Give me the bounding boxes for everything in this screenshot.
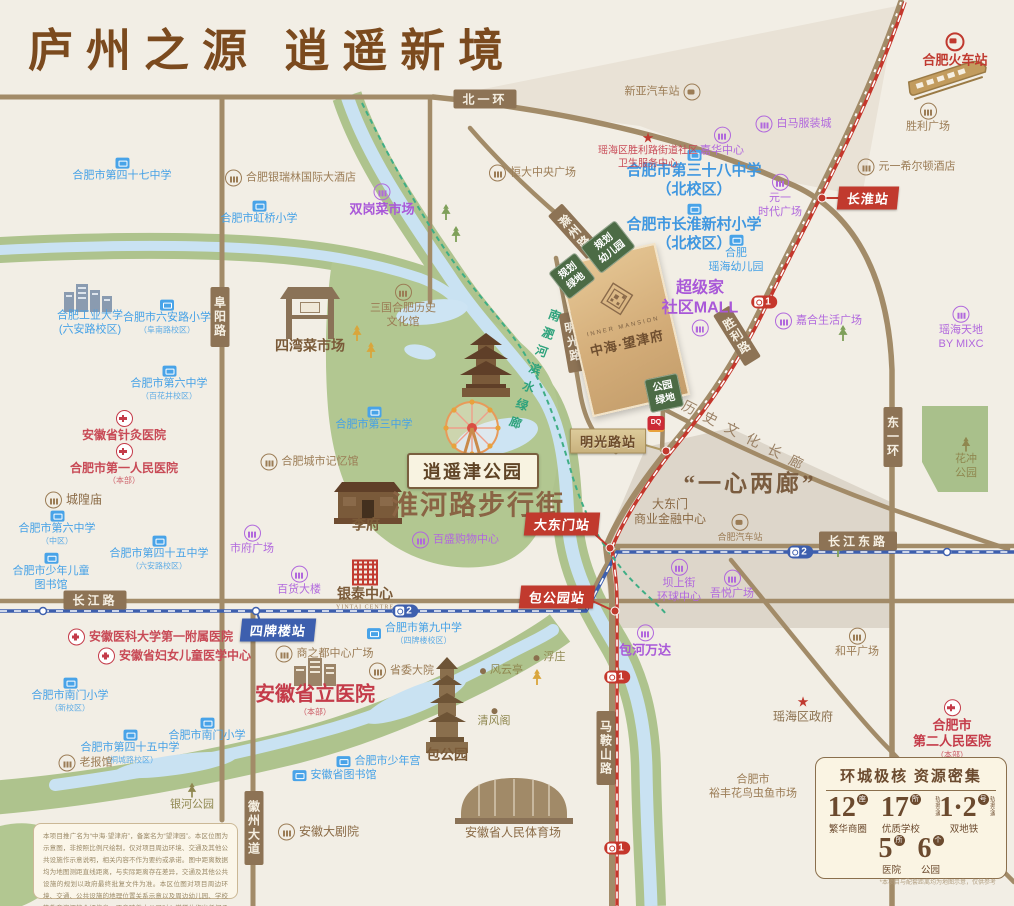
dot-icon: [534, 655, 540, 661]
poi-label-line: 三国合肥历史: [370, 302, 436, 316]
poi: 合肥瑶海幼儿园: [709, 234, 764, 275]
poi-label-line: 合肥: [709, 247, 764, 261]
school-icon: [50, 511, 64, 522]
poi-label: 合肥市裕丰花鸟虫鱼市场: [709, 773, 797, 801]
poi: 合肥火车站: [922, 31, 987, 68]
poi-label: 商之都中心广场: [297, 647, 374, 661]
poi-label-line: 合肥市: [913, 717, 991, 733]
poi: 花冲公园: [955, 436, 977, 481]
poi-label-line: 安徽医科大学第一附属医院: [89, 630, 233, 645]
poi-label: 嘉合生活广场: [796, 314, 862, 328]
mall-icon: [412, 532, 429, 549]
poi: 合肥市第三中学: [336, 406, 413, 433]
station-badge: 长淮站: [837, 187, 899, 210]
poi-label-line: 风云亭: [490, 664, 523, 678]
poi-label-line: 嘉华中心: [700, 145, 744, 159]
poi: 合肥工业大学(六安路校区): [57, 309, 123, 337]
disclaimer-panel: 本项目推广名为“中海·望津府”，备案名为“望津园”。本区位图为示意图，非按照比例…: [33, 823, 238, 899]
tree-icon: [960, 437, 972, 452]
legend-stat: 5所医院: [879, 835, 905, 876]
school-icon: [123, 730, 137, 741]
poi-label-line: 合肥市第四十七中学: [73, 170, 172, 184]
poi: 合肥市第九中学（四牌楼校区）: [366, 622, 462, 646]
poi-label: 合肥市第三中学: [336, 419, 413, 433]
poi: 双岗菜市场: [349, 182, 414, 217]
poi-label: 浮庄: [544, 651, 566, 665]
poi-label-line: 合肥城市记忆馆: [282, 455, 359, 469]
poi: 元一希尔顿酒店: [857, 158, 956, 177]
poi: 合肥市第二人民医院（本部）: [913, 698, 991, 760]
poi-label-line: 百盛购物中心: [433, 533, 499, 547]
poi-label: 安徽省图书馆: [311, 769, 377, 783]
poi: 风云亭: [479, 664, 523, 678]
legend-stat-number: 1·2: [939, 794, 976, 822]
metro-line-number: 1: [765, 297, 771, 308]
poi: 四湾菜市场: [275, 338, 345, 356]
poi-sublabel: （四牌楼校区）: [385, 636, 462, 646]
school-icon: [152, 536, 166, 547]
legend-stat-unit: 所: [910, 794, 921, 805]
poi-label-line: 合肥工业大学: [57, 309, 123, 323]
metro-logo-icon: [607, 673, 616, 682]
poi-label: 合肥市少年儿童图书馆: [13, 565, 90, 593]
poi-label: 和平广场: [835, 646, 879, 660]
poi-label: 超级家社区MALL: [662, 279, 738, 319]
poi: 合肥银瑞林国际大酒店: [224, 169, 356, 188]
poi-label: 合肥市六安路小学（阜南路校区）: [123, 312, 211, 336]
poi-label: 合肥汽车站: [717, 532, 762, 543]
poi-label: 安徽省妇女儿童医学中心: [119, 649, 251, 664]
poi: 包河万达: [619, 623, 671, 658]
poi-label-line: 合肥市第一人民医院: [70, 461, 178, 476]
mall-icon: [775, 313, 792, 330]
road-tag: 徽州大道: [245, 791, 264, 865]
poi-label-line: 合肥汽车站: [717, 532, 762, 543]
poi: 城隍庙: [44, 491, 102, 510]
legend-note: *本项目与配套距离均为地图示意，仅供参考: [826, 877, 996, 886]
poi-label: 嘉华中心: [700, 145, 744, 159]
mall-icon: [291, 566, 308, 583]
poi-label-line: 裕丰花鸟虫鱼市场: [709, 787, 797, 801]
school-icon: [252, 201, 266, 212]
poi-sublabel: （中区）: [19, 536, 96, 546]
legend-stat: 轨道交通1·2号轨道交通双地铁: [934, 794, 994, 835]
dot-icon: [480, 668, 486, 674]
poi-label-line: 银河公园: [170, 799, 214, 813]
poi: 和平广场: [835, 627, 879, 660]
poi-label: 银泰中心YINTAI CENTRE: [336, 587, 394, 612]
legend-stat-label: 繁华商圈: [828, 821, 868, 835]
poi-label: 合肥城市记忆馆: [282, 455, 359, 469]
poi-label-line: 时代广场: [758, 206, 802, 220]
planning-green-box: 公园绿地: [644, 373, 684, 413]
poi: 吾悦广场: [710, 569, 754, 602]
legend-stat-row: 17所: [881, 794, 921, 822]
poi-label-line: 公园: [955, 467, 977, 481]
poi: 银泰中心YINTAI CENTRE: [336, 559, 394, 612]
station-badge: 四牌楼站: [240, 619, 316, 642]
poi: 合肥市南门小学（新校区）: [32, 677, 109, 714]
poi: 合肥市第四十七中学: [73, 157, 172, 184]
poi-label-line: 包公园: [426, 747, 468, 765]
legend-stat-row: 6个: [918, 835, 944, 863]
brnc-icon: [849, 628, 866, 645]
poi: 市府广场: [230, 524, 274, 557]
mall-icon: [756, 116, 773, 133]
poi-label-line: 恒大中央广场: [510, 166, 576, 180]
xiaoyaojin-pagoda-illustration: [458, 333, 514, 397]
road-tag: 长江路: [63, 591, 126, 610]
legend-stat-label: 公园: [918, 862, 944, 876]
legend-stat: 6个公园: [918, 835, 944, 876]
poi-label-line: 合肥银瑞林国际大酒店: [246, 171, 356, 185]
poi-label: 新亚汽车站: [625, 85, 680, 99]
poi-label: 大东门商业金融中心: [634, 497, 706, 527]
poi: 合肥城市记忆馆: [260, 453, 359, 472]
legend-stat-unit: 所: [894, 835, 905, 846]
poi-label: 合肥市第二人民医院（本部）: [913, 717, 991, 760]
yintai-icon: [352, 560, 378, 586]
disclaimer-text: 本项目推广名为“中海·望津府”，备案名为“望津园”。本区位图为示意图，非按照比例…: [43, 831, 228, 906]
poi-label: 元一希尔顿酒店: [879, 160, 956, 174]
road-tag: 马鞍山路: [597, 711, 616, 785]
poi-label: 省委大院: [390, 664, 434, 678]
metro-line-1-badge: 1: [604, 842, 630, 855]
star-icon: ★: [797, 695, 810, 709]
poi: ★瑶海区胜利路街道社区卫生服务中心: [598, 130, 698, 171]
poi-label-line: 城隍庙: [66, 493, 102, 508]
school-icon: [367, 629, 381, 640]
road-tag: 东一环: [884, 407, 903, 467]
legend-panel: 环城极核 资源密集 12座繁华商圈17所优质学校轨道交通1·2号轨道交通双地铁5…: [815, 757, 1007, 879]
poi-label-line: 坝上街: [657, 577, 701, 591]
poi-label-line: 商之都中心广场: [297, 647, 374, 661]
university-building-illustration: [62, 280, 114, 312]
poi: 合肥市第六中学（中区）: [19, 510, 96, 547]
brnc-icon: [369, 663, 386, 680]
poi-label-line: 合肥市长淮新村小学: [626, 216, 761, 235]
poi: 安徽大剧院: [277, 823, 359, 842]
poi-sublabel: （新校区）: [32, 703, 109, 713]
legend-stat-number: 5: [879, 835, 893, 863]
poi-label-line: 浮庄: [544, 651, 566, 665]
poi-label: 合肥市少年宫: [355, 755, 421, 769]
legend-stat-number: 12: [828, 794, 856, 822]
poi: 商之都中心广场: [275, 645, 374, 664]
legend-stat-number: 17: [881, 794, 909, 822]
school-icon: [367, 407, 381, 418]
cross-icon: [115, 410, 132, 427]
bus-icon: [731, 514, 748, 531]
poi: 合肥市六安路小学（阜南路校区）: [123, 299, 211, 336]
poi-label-line: 第二人民医院: [913, 734, 991, 750]
cross-icon: [943, 699, 960, 716]
poi-label-line: 市府广场: [230, 543, 274, 557]
poi-label: 恒大中央广场: [510, 166, 576, 180]
poi-label-line: 安徽省图书馆: [311, 769, 377, 783]
metro-line-2-badge: 2: [787, 546, 813, 559]
mall-icon: [244, 525, 261, 542]
metro-logo-icon: [607, 844, 616, 853]
poi-sublabel: （本部）: [255, 708, 375, 718]
planning-green-box-label: 绿地: [654, 391, 676, 408]
poi-label: 吾悦广场: [710, 588, 754, 602]
legend-stat-unit: 座: [857, 794, 868, 805]
poi-label: 合肥市第一人民医院（本部）: [70, 461, 178, 486]
metro-line-1-badge: 1: [604, 671, 630, 684]
poi-label-line: 合肥市第九中学: [385, 622, 462, 636]
brnc-icon: [489, 165, 506, 182]
poi-label-line: 花冲: [955, 453, 977, 467]
brnc-icon: [395, 284, 412, 301]
legend-stat-unit: 个: [933, 835, 944, 846]
metro-logo-icon: [790, 548, 799, 557]
poi-label: 安徽省针灸医院: [82, 428, 166, 443]
dot-icon: [491, 708, 497, 714]
poi: 李府: [352, 517, 380, 535]
school-icon: [63, 678, 77, 689]
poi-label: 风云亭: [490, 664, 523, 678]
brnc-icon: [920, 103, 937, 120]
poi: 白马服装城: [755, 115, 832, 134]
poi: 老报馆: [58, 754, 113, 773]
poi: 省委大院: [368, 662, 434, 681]
poi: 清风阁: [478, 707, 511, 729]
legend-stat-micro: 轨道交通: [989, 796, 995, 816]
poi: 百盛购物中心: [411, 531, 499, 550]
poi-label: 百货大楼: [277, 584, 321, 598]
poi-label: 三国合肥历史文化馆: [370, 302, 436, 330]
poi-label-line: 瑶海区胜利路街道社区: [598, 146, 698, 159]
poi: 合肥汽车站: [717, 513, 762, 543]
poi-label-line: 省委大院: [390, 664, 434, 678]
poi-label: 合肥市第六中学（百花井校区）: [131, 378, 208, 402]
poi: 合肥市第一人民医院（本部）: [70, 442, 178, 486]
poi-label: 合肥银瑞林国际大酒店: [246, 171, 356, 185]
poi-label-line: 四湾菜市场: [275, 338, 345, 356]
poi-label: 合肥火车站: [922, 52, 987, 68]
poi: 合肥市裕丰花鸟虫鱼市场: [709, 773, 797, 801]
poi-label: 安徽大剧院: [299, 825, 359, 840]
poi-label-line: 合肥市六安路小学: [123, 312, 211, 326]
road-tag: 长江东路: [819, 532, 897, 551]
legend-stat-unit: 号: [978, 794, 989, 805]
poi-label: 安徽省立医院（本部）: [255, 683, 375, 718]
poi-label-line: 双岗菜市场: [349, 201, 414, 217]
poi-label: 李府: [352, 517, 380, 535]
school-icon: [337, 757, 351, 768]
poi-label: 白马服装城: [777, 117, 832, 131]
poi: 坝上街环球中心: [657, 558, 701, 605]
poi-label: 清风阁: [478, 715, 511, 729]
poi: 合肥市第六中学（百花井校区）: [131, 365, 208, 402]
poi: 浮庄: [533, 651, 566, 665]
poi-label-line: 合肥市少年宫: [355, 755, 421, 769]
poi-label: 合肥市南门小学: [169, 730, 246, 744]
poi: 瑶海天地BY MIXC: [938, 305, 983, 352]
poi-label-line: 合肥市第四十五中学: [110, 548, 209, 562]
poi-label-line: 大东门: [634, 497, 706, 512]
tree-icon: [186, 783, 198, 798]
metro-line-number: 2: [801, 547, 807, 558]
poi-label-line: 嘉合生活广场: [796, 314, 862, 328]
road-tag: 北一环: [453, 90, 516, 109]
mall-icon: [636, 624, 653, 641]
legend-stat: 12座繁华商圈: [828, 794, 868, 835]
poi-label: 瑶海区政府: [773, 710, 833, 725]
poi-label-line: 合肥市: [709, 773, 797, 787]
legend-stat-row: 轨道交通1·2号轨道交通: [934, 794, 994, 822]
poi-label-line: 合肥市南门小学: [169, 730, 246, 744]
poi-label-line: BY MIXC: [938, 338, 983, 352]
poi-label: 包公园: [426, 747, 468, 765]
poi-label-line: 文化馆: [370, 316, 436, 330]
poi-label-line: 安徽省妇女儿童医学中心: [119, 649, 251, 664]
cross-icon: [115, 443, 132, 460]
poi: 大东门商业金融中心: [634, 497, 706, 527]
star-icon: ★: [642, 131, 655, 145]
rail-icon: [945, 32, 964, 51]
poi-label-line: 吾悦广场: [710, 588, 754, 602]
poi: 恒大中央广场: [488, 164, 576, 183]
brnc-icon: [278, 824, 295, 841]
metro-line-1-badge: 1: [751, 296, 777, 309]
poi-label: 四湾菜市场: [275, 338, 345, 356]
poi: 超级家社区MALL: [662, 279, 738, 338]
poi: 新亚汽车站: [625, 83, 702, 102]
mall-icon: [953, 306, 970, 323]
brnc-icon: [45, 492, 62, 509]
mall-icon: [714, 127, 731, 144]
poi-label: 安徽医科大学第一附属医院: [89, 630, 233, 645]
poi-label: 双岗菜市场: [349, 201, 414, 217]
poi-label-line: 安徽省立医院: [255, 683, 375, 708]
project-diamond-logo-icon: [595, 277, 638, 320]
poi-label-line: 百货大楼: [277, 584, 321, 598]
metro-line-2-badge: 2: [392, 605, 418, 618]
brnc-icon: [59, 755, 76, 772]
metro-line-number: 1: [618, 672, 624, 683]
poi-label-line: 包河万达: [619, 642, 671, 658]
poi-label-line: 瑶海天地: [938, 324, 983, 338]
poi-label-en: YINTAI CENTRE: [336, 604, 394, 612]
legend-title: 环城极核 资源密集: [826, 765, 996, 791]
poi: 合肥市第四十五中学（六安路校区）: [110, 535, 209, 572]
poi-label: 合肥瑶海幼儿园: [709, 247, 764, 275]
poi: 胜利广场: [906, 102, 950, 135]
school-icon: [293, 771, 307, 782]
poi-label: 安徽省人民体育场: [465, 826, 561, 841]
legend-stat-number: 6: [918, 835, 932, 863]
poi-label-line: 超级家: [662, 279, 738, 299]
city-map: 庐州之源 逍遥新境 逍遥津公园 淮河路步行街 “一心两廊” 历史文化长廊 南淝河…: [0, 0, 1014, 906]
poi-sublabel: （百花井校区）: [131, 391, 208, 401]
poi-label: 瑶海区胜利路街道社区卫生服务中心: [598, 146, 698, 171]
mall-icon: [692, 320, 709, 337]
poi-label-line: 合肥市南门小学: [32, 690, 109, 704]
station-badge: 明光路站: [570, 429, 646, 454]
poi-label-line: 合肥市虹桥小学: [221, 213, 298, 227]
poi-label-line: 元一: [758, 192, 802, 206]
school-icon: [729, 235, 743, 246]
poi: 合肥市虹桥小学: [221, 200, 298, 227]
poi-label-line: 银泰中心: [336, 587, 394, 605]
poi: 安徽医科大学第一附属医院: [67, 628, 233, 647]
poi-label-line: （北校区）: [626, 181, 761, 200]
station-badge: 大东门站: [524, 513, 600, 536]
poi-label-line: 李府: [352, 517, 380, 535]
poi-label: 合肥市第四十七中学: [73, 170, 172, 184]
mall-icon: [772, 174, 789, 191]
poi-label: 合肥市南门小学（新校区）: [32, 690, 109, 714]
poi-label-line: 瑶海幼儿园: [709, 261, 764, 275]
poi-label: 银河公园: [170, 799, 214, 813]
poi-label-line: 合肥市第六中学: [19, 523, 96, 537]
poi-label: 市府广场: [230, 543, 274, 557]
school-icon: [162, 366, 176, 377]
poi-label-line: 和平广场: [835, 646, 879, 660]
metro-line-number: 2: [406, 606, 412, 617]
poi-label-line: 商业金融中心: [634, 512, 706, 527]
poi-label-line: 社区MALL: [662, 299, 738, 319]
poi: 安徽省针灸医院: [82, 409, 166, 443]
poi-label-line: (六安路校区): [57, 323, 123, 337]
poi-label: 城隍庙: [66, 493, 102, 508]
poi-sublabel: （六安路校区）: [110, 561, 209, 571]
cross-icon: [98, 648, 115, 665]
poi-label: 合肥工业大学(六安路校区): [57, 309, 123, 337]
poi-label: 百盛购物中心: [433, 533, 499, 547]
poi-label: 元一时代广场: [758, 192, 802, 220]
poi: 安徽省人民体育场: [465, 826, 561, 841]
poi: 安徽省立医院（本部）: [255, 683, 375, 718]
brnc-icon: [225, 170, 242, 187]
school-icon: [44, 553, 58, 564]
poi-label: 合肥市虹桥小学: [221, 213, 298, 227]
poi-label-line: 清风阁: [478, 715, 511, 729]
poi: 包公园: [426, 747, 468, 765]
poi-label-line: 老报馆: [80, 756, 113, 770]
poi-label-line: 元一希尔顿酒店: [879, 160, 956, 174]
school-icon: [200, 718, 214, 729]
legend-stat-row: 12座: [828, 794, 868, 822]
poi-label: 老报馆: [80, 756, 113, 770]
poi: 嘉合生活广场: [774, 312, 862, 331]
legend-stat-label: 医院: [879, 862, 905, 876]
poi: 银河公园: [170, 782, 214, 813]
poi: 百货大楼: [277, 565, 321, 598]
brnc-icon: [276, 646, 293, 663]
poi-label: 坝上街环球中心: [657, 577, 701, 605]
school-icon: [687, 204, 701, 215]
poi: 安徽省妇女儿童医学中心: [97, 647, 251, 666]
school-icon: [115, 158, 129, 169]
legend-stats: 12座繁华商圈17所优质学校轨道交通1·2号轨道交通双地铁5所医院6个公园: [826, 794, 996, 876]
poi-label: 花冲公园: [955, 453, 977, 481]
road-tag: 阜阳路: [211, 287, 230, 347]
poi-label: 胜利广场: [906, 121, 950, 135]
poi: 三国合肥历史文化馆: [370, 283, 436, 330]
poi-label: 合肥市第四十五中学（六安路校区）: [110, 548, 209, 572]
poi-label-line: 胜利广场: [906, 121, 950, 135]
poi: 安徽省图书馆: [292, 769, 377, 783]
poi: ★瑶海区政府: [773, 694, 833, 725]
poi-label-line: 合肥市第六中学: [131, 378, 208, 392]
poi-label-line: 安徽大剧院: [299, 825, 359, 840]
poi-label-line: 环球中心: [657, 591, 701, 605]
station-badge: 包公园站: [519, 586, 595, 609]
poi-label-line: 瑶海区政府: [773, 710, 833, 725]
